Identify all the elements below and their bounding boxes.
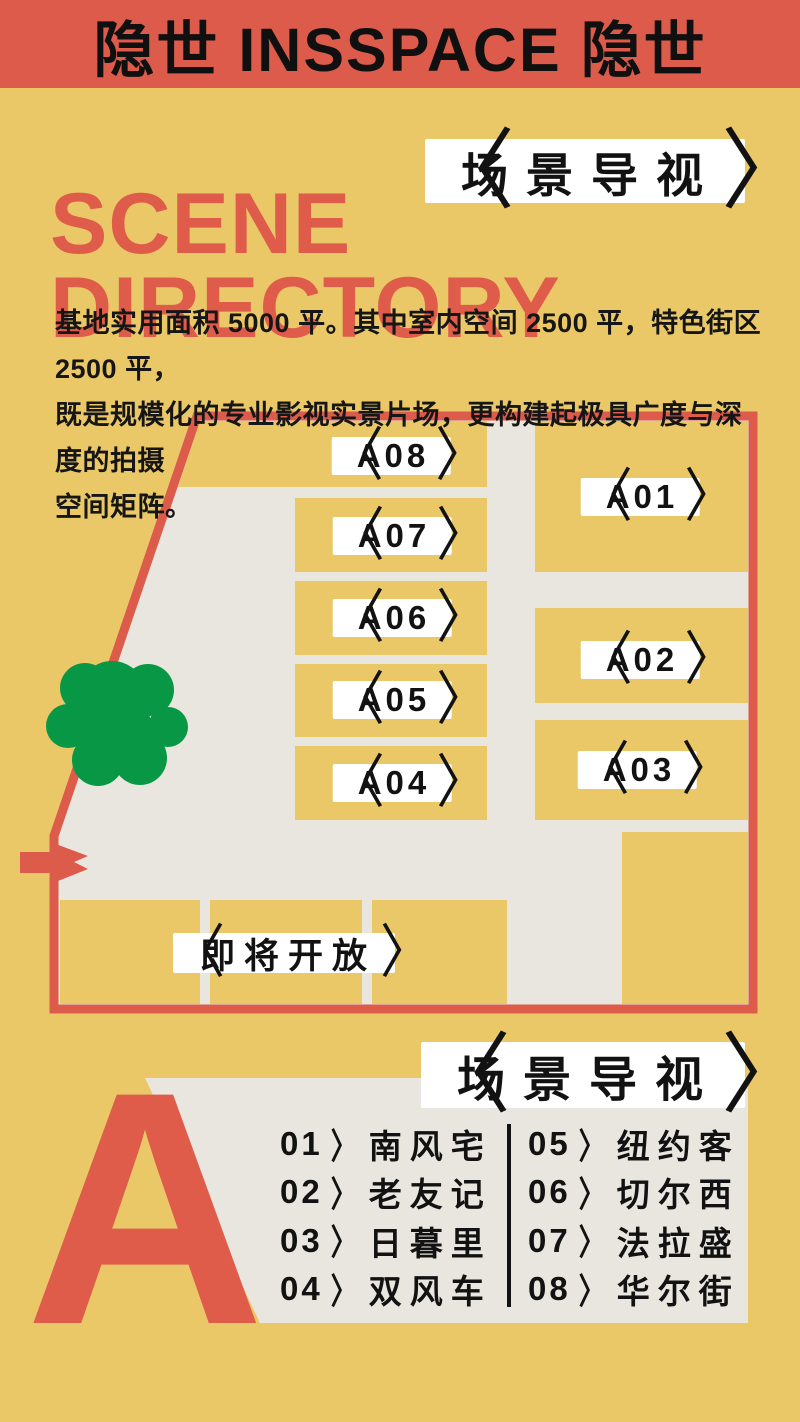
right-angle-bracket-icon: 〉 (579, 1216, 605, 1266)
legend-item-05: 05 〉 纽约客 (528, 1120, 740, 1168)
big-letter-a: A (25, 1023, 265, 1394)
top-banner: 隐世 INSSPACE 隐世 (0, 0, 800, 88)
right-angle-bracket-icon: 〉 (579, 1167, 605, 1217)
right-angle-bracket-icon: 〉 (331, 1167, 357, 1217)
right-angle-bracket-icon: 〉 (579, 1119, 605, 1169)
scene-directory-poster: A 隐世 INSSPACE 隐世 SCENE DIRECTORY 〈 场景导视 … (0, 0, 800, 1422)
legend-item-06: 06 〉 切尔西 (528, 1168, 740, 1216)
map-label-a06: 〈 A06 〉 (333, 599, 452, 637)
legend-divider (507, 1124, 511, 1307)
right-angle-bracket-icon: 〉 (579, 1264, 605, 1314)
scene-directory-badge-top: 〈 场景导视 〉 (425, 139, 745, 203)
legend-item-01: 01 〉 南风宅 (280, 1120, 492, 1168)
map-label-a07: 〈 A07 〉 (333, 517, 452, 555)
map-label-a02: 〈 A02 〉 (581, 641, 700, 679)
legend-column-1: 01 〉 南风宅 02 〉 老友记 03 〉 日暮里 04 〉 双风车 (280, 1120, 492, 1313)
map-label-a04: 〈 A04 〉 (333, 764, 452, 802)
legend-item-08: 08 〉 华尔街 (528, 1265, 740, 1313)
map-label-a03: 〈 A03 〉 (578, 751, 697, 789)
map-label-a01: 〈 A01 〉 (581, 478, 700, 516)
legend-item-07: 07 〉 法拉盛 (528, 1217, 740, 1265)
legend-item-02: 02 〉 老友记 (280, 1168, 492, 1216)
scene-directory-badge-bottom: 〈 场景导视 〉 (421, 1042, 745, 1108)
legend-column-2: 05 〉 纽约客 06 〉 切尔西 07 〉 法拉盛 08 〉 华尔街 (528, 1120, 740, 1313)
right-angle-bracket-icon: 〉 (331, 1264, 357, 1314)
brand-logo-text: 隐世 INSSPACE 隐世 (93, 0, 706, 89)
map-label-coming-soon: 〈 即将开放 〉 (173, 933, 395, 973)
right-angle-bracket-icon: 〉 (331, 1216, 357, 1266)
map-label-a05: 〈 A05 〉 (333, 681, 452, 719)
legend-item-03: 03 〉 日暮里 (280, 1217, 492, 1265)
intro-line1: 基地实用面积 5000 平。其中室内空间 2500 平，特色街区 2500 平， (55, 300, 767, 392)
map-label-a08: 〈 A08 〉 (332, 437, 451, 475)
legend-item-04: 04 〉 双风车 (280, 1265, 492, 1313)
right-angle-bracket-icon: 〉 (331, 1119, 357, 1169)
block-corner-shape (622, 832, 748, 1004)
